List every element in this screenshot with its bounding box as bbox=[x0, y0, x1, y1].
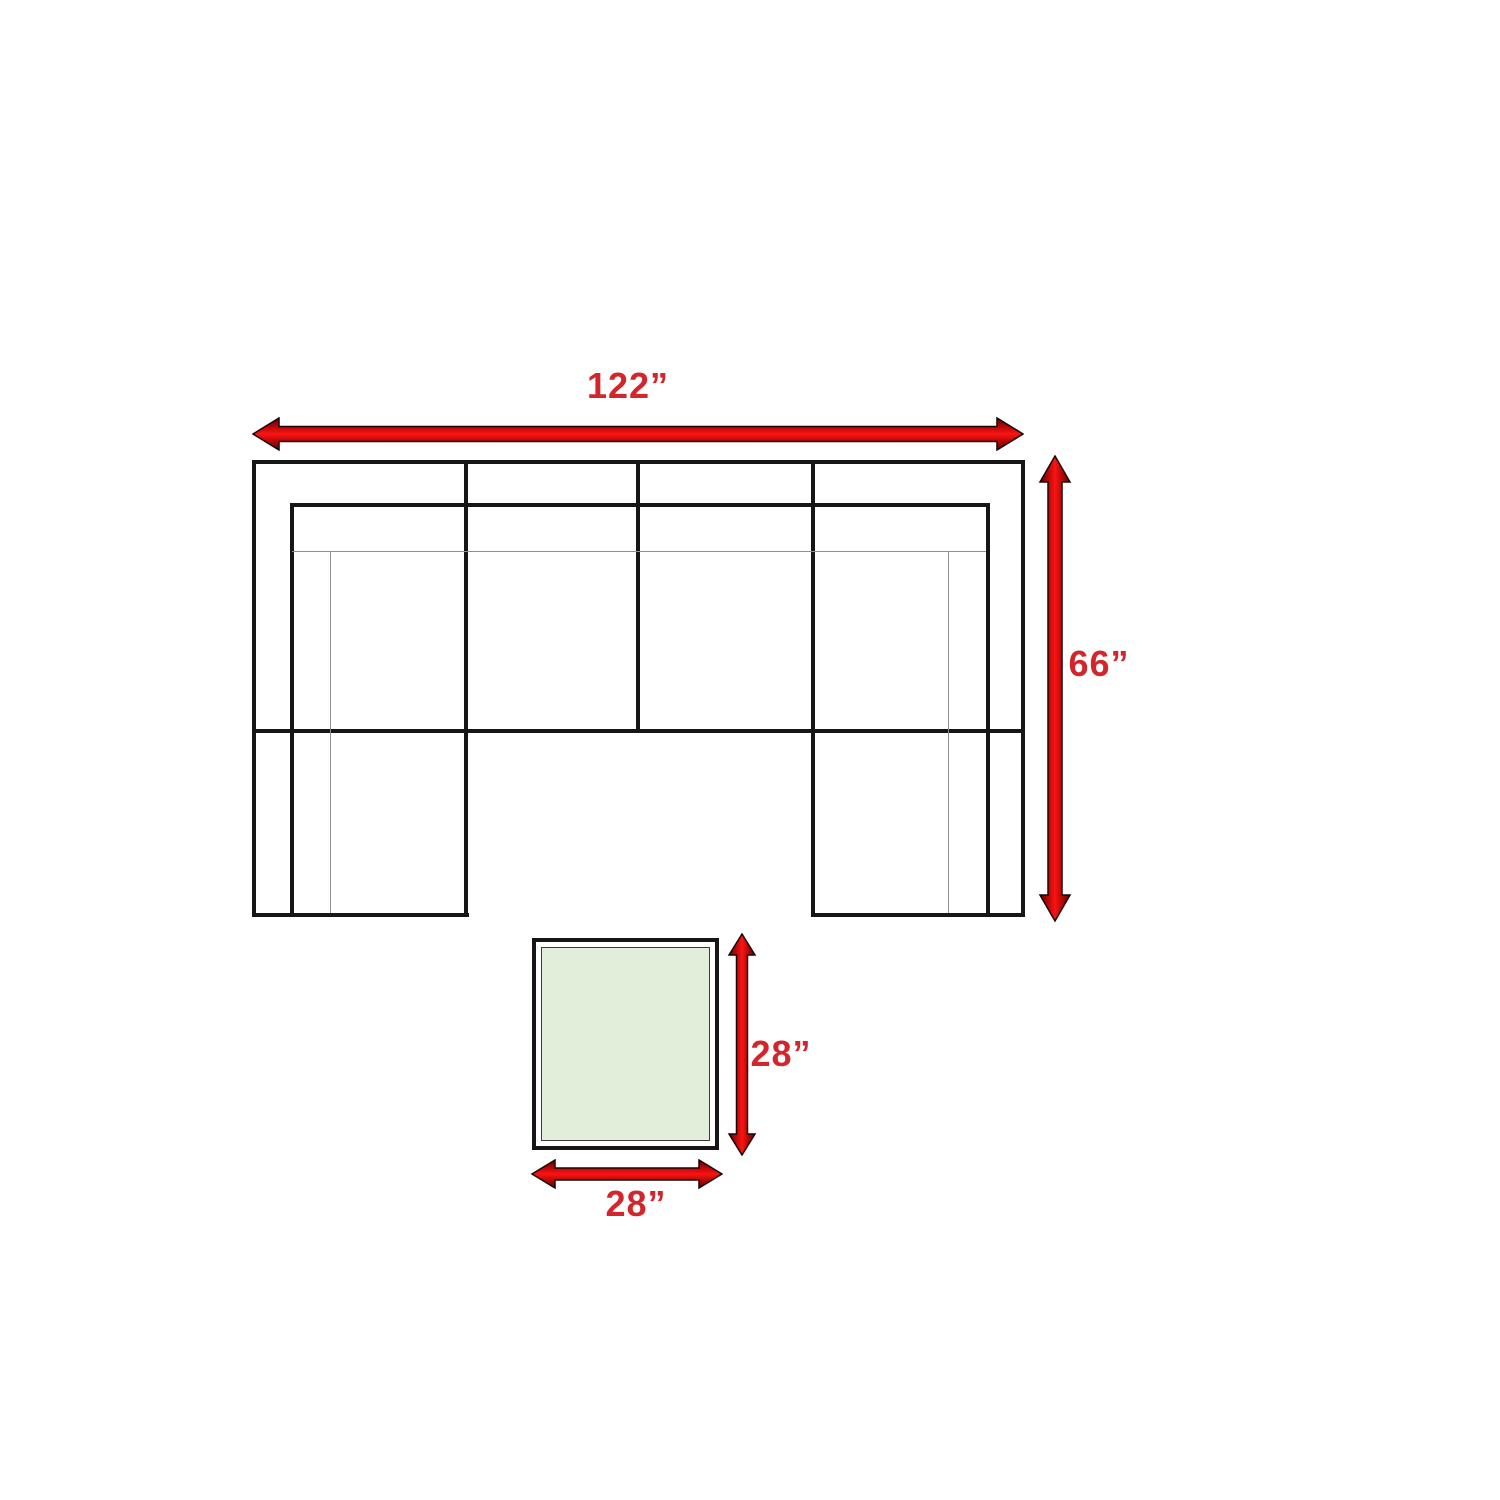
left-chaise-front-edge bbox=[252, 913, 469, 917]
ottoman-top-view bbox=[532, 938, 719, 1150]
left-arm-inner-edge bbox=[290, 503, 294, 917]
seat-divider-left bbox=[464, 460, 468, 917]
sofa-width-arrow bbox=[252, 417, 1024, 451]
seat-divider-right bbox=[811, 460, 815, 917]
right-arm-inner-edge bbox=[986, 503, 990, 917]
ottoman-width-label: 28” bbox=[605, 1183, 666, 1225]
sofa-back-inner-edge bbox=[291, 503, 990, 507]
seat-cushion-line-left bbox=[330, 551, 331, 913]
seat-cushion-line-right bbox=[948, 551, 949, 913]
sofa-width-label: 122” bbox=[587, 365, 669, 407]
seat-divider-center bbox=[636, 460, 640, 733]
left-arm-outer-edge bbox=[252, 460, 256, 917]
sofa-depth-arrow bbox=[1038, 455, 1072, 922]
seat-cushion-line-horizontal bbox=[292, 551, 986, 552]
right-chaise-front-edge bbox=[811, 913, 1025, 917]
ottoman-surface bbox=[541, 947, 710, 1141]
sofa-depth-label: 66” bbox=[1068, 643, 1129, 685]
ottoman-depth-label: 28” bbox=[750, 1033, 811, 1075]
furniture-dimension-diagram: 122” 66” 28” 28” bbox=[0, 0, 1500, 1500]
right-arm-outer-edge bbox=[1021, 460, 1025, 917]
